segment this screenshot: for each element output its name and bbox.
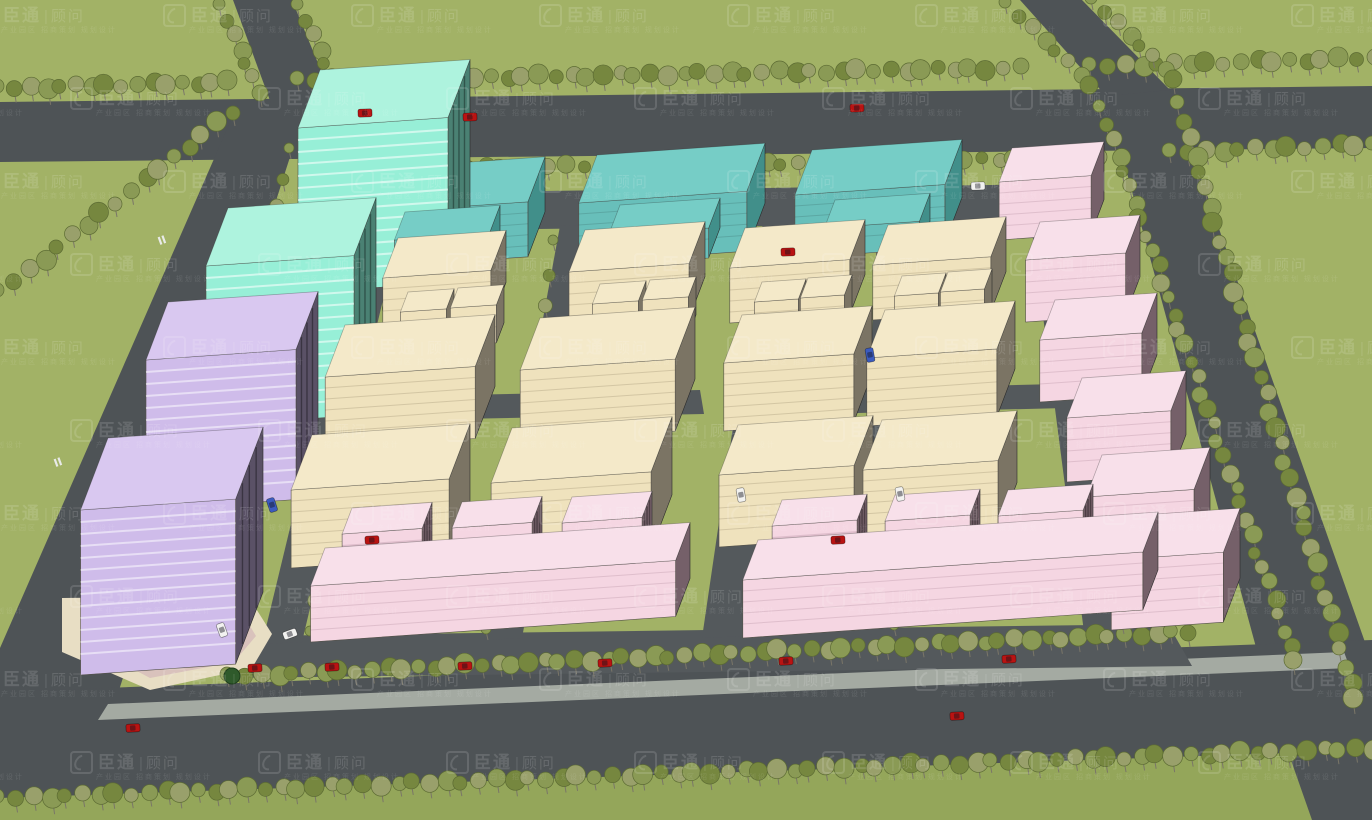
car [850, 104, 864, 112]
car [325, 663, 339, 672]
car [248, 664, 262, 673]
car [463, 113, 477, 121]
car [358, 109, 372, 117]
plaza-tree [224, 668, 240, 684]
cream-d2 [867, 301, 1015, 426]
car [1002, 655, 1016, 664]
car [971, 182, 985, 190]
purple-tower-2 [81, 427, 263, 675]
car [126, 724, 140, 733]
car [831, 536, 845, 545]
car [779, 657, 793, 666]
car [458, 662, 472, 671]
cream-c2 [724, 306, 872, 431]
car [781, 248, 795, 256]
car [950, 712, 964, 721]
scene-3d-render [0, 0, 1372, 820]
aerial-masterplan-rendering: 臣通|顾问产业园区 招商策划 规划设计臣通|顾问产业园区 招商策划 规划设计臣通… [0, 0, 1372, 820]
car [365, 536, 379, 545]
car [598, 659, 612, 668]
